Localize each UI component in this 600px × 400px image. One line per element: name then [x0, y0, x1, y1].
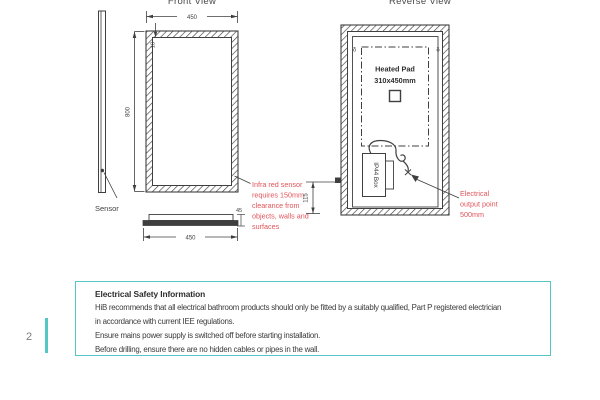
- svg-text:500mm: 500mm: [460, 210, 484, 219]
- infrared-sensor-annotation: Infra red sensor requires 150mm clearanc…: [252, 180, 309, 231]
- installation-diagram: Front View Sensor 800: [0, 0, 600, 268]
- heated-pad-label: Heated Pad: [375, 65, 415, 74]
- side-profile: [99, 11, 118, 198]
- info-box-line: Before drilling, ensure there are no hid…: [95, 343, 550, 357]
- bottom-view: [143, 215, 245, 227]
- reverse-view-drawing: Reverse View δ δ Heated Pad 310x450mm IP…: [304, 0, 498, 219]
- svg-text:objects, walls and: objects, walls and: [252, 212, 309, 221]
- reverse-view-title: Reverse View: [389, 0, 451, 7]
- svg-text:Infra red sensor: Infra red sensor: [252, 180, 303, 189]
- info-box-line: in accordance with current IEE regulatio…: [95, 315, 550, 329]
- svg-text:requires 150mm: requires 150mm: [252, 191, 304, 200]
- electrical-output-annotation: Electrical output point 500mm: [460, 189, 498, 219]
- pad-connector-icon: [390, 91, 401, 102]
- svg-text:clearance from: clearance from: [252, 201, 300, 210]
- sensor-dot-icon: [101, 169, 105, 173]
- manual-page: Front View Sensor 800: [0, 0, 600, 400]
- dim-height-label: 800: [126, 106, 132, 117]
- front-view-drawing: Front View Sensor 800: [95, 0, 309, 242]
- info-box-title: Electrical Safety Information: [95, 287, 550, 301]
- page-number: 2: [26, 331, 32, 343]
- dim-frame-label: 18: [151, 42, 157, 48]
- mirror-front: [146, 31, 238, 192]
- dim-800: [133, 32, 145, 192]
- ip44-box-label: IP44 Box: [372, 162, 379, 188]
- info-box-line: Ensure mains power supply is switched of…: [95, 329, 550, 343]
- dim-115: [306, 178, 341, 214]
- front-view-title: Front View: [168, 0, 216, 7]
- accent-bar: [45, 318, 48, 353]
- dim-width-bottom-label: 450: [185, 236, 196, 242]
- dim-depth-label: 45: [236, 208, 242, 214]
- electrical-safety-info-box: Electrical Safety Information HiB recomm…: [75, 281, 551, 356]
- svg-text:output point: output point: [460, 200, 498, 209]
- heated-pad-size: 310x450mm: [374, 76, 416, 85]
- fixing-point-icon: [335, 178, 341, 184]
- info-box-line: HiB recommends that all electrical bathr…: [95, 301, 550, 315]
- dim-outlet-height-label: 115: [304, 193, 310, 203]
- sensor-label: Sensor: [95, 204, 119, 213]
- svg-text:surfaces: surfaces: [252, 222, 280, 231]
- dim-width-top-label: 450: [187, 15, 198, 21]
- svg-text:Electrical: Electrical: [460, 189, 490, 198]
